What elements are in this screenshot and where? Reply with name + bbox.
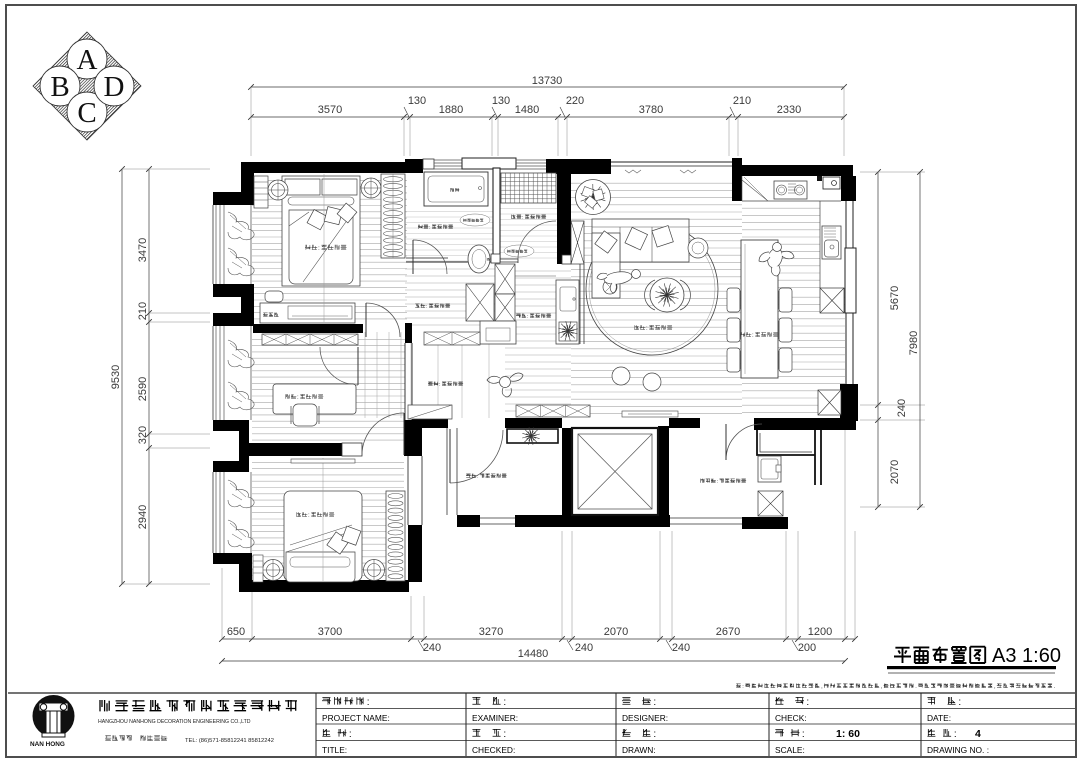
svg-text::: : <box>954 729 957 740</box>
svg-text:1: 60: 1: 60 <box>836 728 860 740</box>
svg-text:NAN HONG: NAN HONG <box>30 741 65 748</box>
svg-text:210: 210 <box>733 95 751 107</box>
svg-text:TITLE:: TITLE: <box>322 745 347 755</box>
svg-text:2330: 2330 <box>777 104 801 116</box>
svg-text:HANGZHOU NANHONG DECORATION: HANGZHOU NANHONG DECORATION ENGINEERING … <box>98 719 251 725</box>
svg-text:1480: 1480 <box>515 104 539 116</box>
svg-text:130: 130 <box>408 95 426 107</box>
svg-text:TEL: (86)571-85812241 8581224: TEL: (86)571-85812241 85812242 <box>185 738 274 744</box>
svg-text:210: 210 <box>137 302 149 320</box>
svg-text:220: 220 <box>566 95 584 107</box>
svg-text:B: B <box>50 71 69 103</box>
svg-text:A3 1:60: A3 1:60 <box>992 645 1061 667</box>
svg-text:DRAWING NO. :: DRAWING NO. : <box>927 745 989 755</box>
svg-text::: : <box>318 245 320 252</box>
svg-text::: : <box>653 697 656 708</box>
svg-text::: : <box>503 697 506 708</box>
svg-text::: : <box>349 729 352 740</box>
svg-text:3570: 3570 <box>318 104 342 116</box>
svg-text:130: 130 <box>492 95 510 107</box>
svg-text:2070: 2070 <box>604 626 628 638</box>
svg-text:200: 200 <box>798 642 816 654</box>
svg-text:C: C <box>77 97 96 129</box>
svg-text::: : <box>806 697 809 708</box>
svg-text:320: 320 <box>137 426 149 444</box>
svg-text:4: 4 <box>975 728 981 740</box>
svg-text:2590: 2590 <box>137 377 149 401</box>
svg-text:CHECK:: CHECK: <box>775 713 807 723</box>
svg-text:9530: 9530 <box>110 365 122 389</box>
svg-text:3270: 3270 <box>479 626 503 638</box>
svg-text:DATE:: DATE: <box>927 713 951 723</box>
svg-text:EXAMINER:: EXAMINER: <box>472 713 518 723</box>
svg-text:3780: 3780 <box>639 104 663 116</box>
svg-text::: : <box>367 697 370 708</box>
svg-text:240: 240 <box>423 642 441 654</box>
svg-text::: : <box>802 729 805 740</box>
svg-text:1880: 1880 <box>439 104 463 116</box>
svg-text:240: 240 <box>575 642 593 654</box>
svg-text:D: D <box>104 71 125 103</box>
svg-text:240: 240 <box>896 399 908 417</box>
svg-text:650: 650 <box>227 626 245 638</box>
svg-text:5670: 5670 <box>889 286 901 310</box>
svg-text:SCALE:: SCALE: <box>775 745 805 755</box>
svg-text:3700: 3700 <box>318 626 342 638</box>
svg-text:2940: 2940 <box>137 505 149 529</box>
svg-text:1200: 1200 <box>808 626 832 638</box>
svg-text::: : <box>503 729 506 740</box>
svg-text:7980: 7980 <box>908 331 920 355</box>
svg-text::: : <box>958 697 961 708</box>
svg-text:A: A <box>77 44 98 76</box>
svg-text:2070: 2070 <box>889 460 901 484</box>
svg-text:DESIGNER:: DESIGNER: <box>622 713 668 723</box>
svg-text:3470: 3470 <box>137 238 149 262</box>
svg-text:PROJECT NAME:: PROJECT NAME: <box>322 713 390 723</box>
svg-text:13730: 13730 <box>532 75 563 87</box>
svg-text:DRAWN:: DRAWN: <box>622 745 656 755</box>
svg-text:240: 240 <box>672 642 690 654</box>
svg-text:2670: 2670 <box>716 626 740 638</box>
svg-text::: : <box>653 729 656 740</box>
svg-text:14480: 14480 <box>518 648 549 660</box>
svg-text:CHECKED:: CHECKED: <box>472 745 515 755</box>
